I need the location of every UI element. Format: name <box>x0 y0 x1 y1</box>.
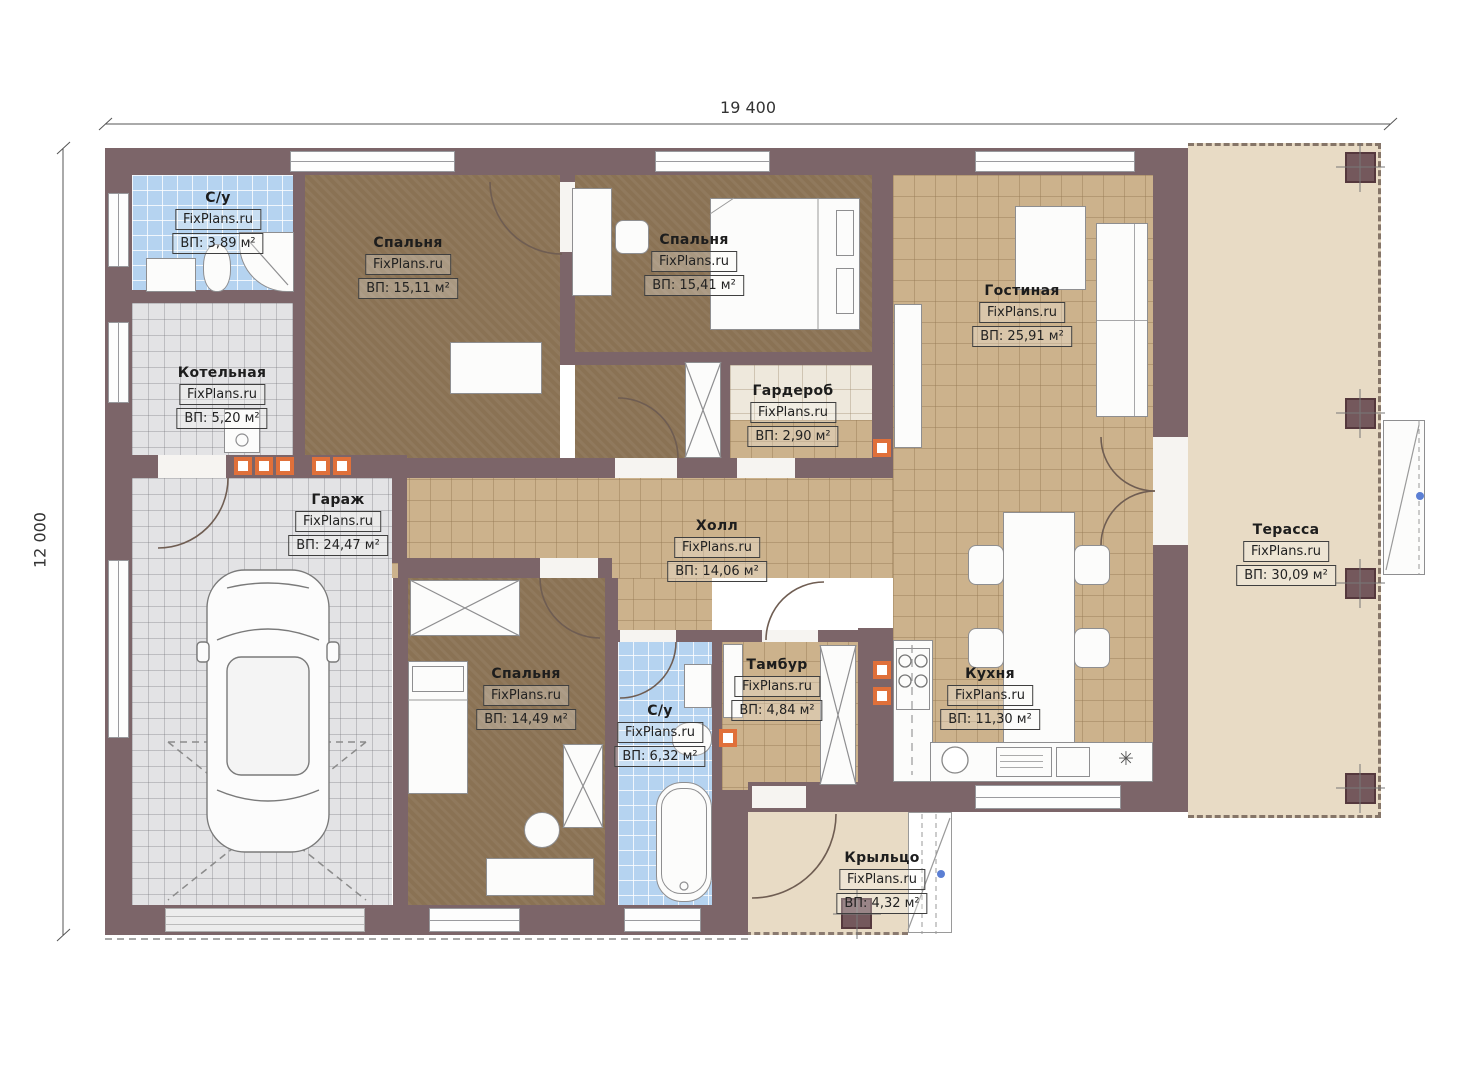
room-label-tambour: Тамбур FixPlans.ru ВП: 4,84 м² <box>731 657 822 721</box>
terrace-post-1 <box>1345 152 1376 183</box>
door-opening-su2 <box>620 630 676 642</box>
room-label-hall: Холл FixPlans.ru ВП: 14,06 м² <box>667 518 767 582</box>
door-opening-boiler-garage <box>158 455 226 478</box>
room-name: Гараж <box>311 492 364 508</box>
pillow-bedroom2-b <box>836 268 854 314</box>
area-box: ВП: 11,30 м² <box>940 709 1040 730</box>
brand-box: FixPlans.ru <box>175 209 261 230</box>
wall-su1-right <box>293 175 305 458</box>
room-name: Крыльцо <box>844 850 919 866</box>
window-top-2 <box>655 151 770 172</box>
brand-box: FixPlans.ru <box>295 511 381 532</box>
door-opening-tambour-porch <box>752 786 806 808</box>
room-name: Терасса <box>1253 522 1320 538</box>
room-label-bedroom2: Спальня FixPlans.ru ВП: 15,41 м² <box>644 232 744 296</box>
brand-box: FixPlans.ru <box>750 402 836 423</box>
terrace-post-3 <box>1345 568 1376 599</box>
room-name: С/у <box>205 190 230 206</box>
closet-bedroom2 <box>685 362 721 458</box>
window-kitchen <box>975 785 1121 809</box>
stove <box>896 648 930 710</box>
vent-6 <box>873 439 891 457</box>
area-box: ВП: 30,09 м² <box>1236 565 1336 586</box>
brand-box: FixPlans.ru <box>365 254 451 275</box>
brand-box: FixPlans.ru <box>617 722 703 743</box>
wall-garage-right <box>392 478 407 563</box>
area-box: ВП: 3,89 м² <box>172 233 263 254</box>
wall-bottom-right <box>748 782 1188 812</box>
wall-corner-block <box>712 790 748 935</box>
room-label-living: Гостиная FixPlans.ru ВП: 25,91 м² <box>972 283 1072 347</box>
bathtub-inner <box>661 788 707 894</box>
dresser-bedroom3 <box>486 858 594 896</box>
brand-box: FixPlans.ru <box>947 685 1033 706</box>
stool-bedroom3 <box>524 812 560 848</box>
dimension-height: 12 000 <box>31 512 50 568</box>
room-name: Гардероб <box>752 383 833 399</box>
door-opening-bedroom3 <box>540 558 598 578</box>
area-box: ВП: 4,32 м² <box>836 893 927 914</box>
sink-bathroom1 <box>146 258 196 292</box>
wall-hall-living <box>872 175 893 473</box>
vent-2 <box>255 457 273 475</box>
brand-box: FixPlans.ru <box>734 676 820 697</box>
vent-8 <box>873 687 891 705</box>
dining-chair-3 <box>1074 545 1110 585</box>
area-box: ВП: 14,06 м² <box>667 561 767 582</box>
room-label-su2: С/у FixPlans.ru ВП: 6,32 м² <box>614 703 705 767</box>
room-label-su1: С/у FixPlans.ru ВП: 3,89 м² <box>172 190 263 254</box>
dining-chair-1 <box>968 545 1004 585</box>
area-box: ВП: 24,47 м² <box>288 535 388 556</box>
area-box: ВП: 4,84 м² <box>731 700 822 721</box>
floor-terrace <box>1188 143 1381 818</box>
room-label-porch: Крыльцо FixPlans.ru ВП: 4,32 м² <box>836 850 927 914</box>
sofa-living <box>1096 223 1148 417</box>
terrace-post-4 <box>1345 773 1376 804</box>
area-box: ВП: 15,11 м² <box>358 278 458 299</box>
area-box: ВП: 5,20 м² <box>176 408 267 429</box>
area-box: ВП: 15,41 м² <box>644 275 744 296</box>
room-name: Тамбур <box>746 657 807 673</box>
wall-kitchen-left <box>858 628 893 782</box>
closet-bedroom3-top <box>410 580 520 636</box>
room-label-bedroom1: Спальня FixPlans.ru ВП: 15,11 м² <box>358 235 458 299</box>
vent-9 <box>719 729 737 747</box>
room-label-kitchen: Кухня FixPlans.ru ВП: 11,30 м² <box>940 666 1040 730</box>
room-label-terrace: Терасса FixPlans.ru ВП: 30,09 м² <box>1236 522 1336 586</box>
door-opening-tambour-hall <box>762 630 818 642</box>
room-name: Холл <box>696 518 738 534</box>
closet-bedroom3-low <box>563 744 603 828</box>
terrace-post-2 <box>1345 398 1376 429</box>
brand-box: FixPlans.ru <box>483 685 569 706</box>
tv-stand-living <box>894 304 922 448</box>
area-box: ВП: 25,91 м² <box>972 326 1072 347</box>
brand-box: FixPlans.ru <box>979 302 1065 323</box>
vent-7 <box>873 661 891 679</box>
dimension-width: 19 400 <box>720 98 776 117</box>
room-name: С/у <box>647 703 672 719</box>
brand-box: FixPlans.ru <box>1243 541 1329 562</box>
pillow-bedroom2-a <box>836 210 854 256</box>
room-label-wardrobe: Гардероб FixPlans.ru ВП: 2,90 м² <box>747 383 838 447</box>
terrace-ramp <box>1383 420 1425 575</box>
coffee-table-living <box>1015 206 1086 290</box>
vent-3 <box>276 457 294 475</box>
defrost-symbol: ✳ <box>1118 748 1134 770</box>
dining-chair-2 <box>968 628 1004 668</box>
room-name: Спальня <box>659 232 728 248</box>
desk-bedroom2 <box>572 188 612 296</box>
room-label-garage: Гараж FixPlans.ru ВП: 24,47 м² <box>288 492 388 556</box>
vent-5 <box>333 457 351 475</box>
room-label-bedroom3: Спальня FixPlans.ru ВП: 14,49 м² <box>476 666 576 730</box>
room-name: Спальня <box>491 666 560 682</box>
dishwasher <box>996 747 1052 777</box>
brand-box: FixPlans.ru <box>839 869 925 890</box>
door-opening-bedroom2 <box>615 458 677 478</box>
vent-4 <box>312 457 330 475</box>
area-box: ВП: 2,90 м² <box>747 426 838 447</box>
pillow-bedroom3 <box>412 666 464 692</box>
window-bottom-1 <box>429 908 520 932</box>
area-box: ВП: 6,32 м² <box>614 746 705 767</box>
room-name: Гостиная <box>984 283 1059 299</box>
door-opening-terrace <box>1153 437 1188 545</box>
window-top-1 <box>290 151 455 172</box>
closet-tambour <box>820 645 856 785</box>
washer-bathroom2 <box>684 664 712 708</box>
room-label-boiler: Котельная FixPlans.ru ВП: 5,20 м² <box>176 365 267 429</box>
garage-door <box>165 908 365 932</box>
window-top-3 <box>975 151 1135 172</box>
floor-bedroom-1 <box>305 175 560 458</box>
brand-box: FixPlans.ru <box>674 537 760 558</box>
floor-plan: ✳ <box>0 0 1474 1080</box>
window-left-2 <box>108 322 129 403</box>
brand-box: FixPlans.ru <box>651 251 737 272</box>
kitchen-cabinet <box>1056 747 1090 777</box>
bed-bedroom1 <box>450 342 542 394</box>
window-bottom-2 <box>624 908 701 932</box>
window-left-1 <box>108 193 129 267</box>
room-name: Кухня <box>965 666 1015 682</box>
vent-1 <box>234 457 252 475</box>
wall-wardrobe-left <box>720 352 730 458</box>
brand-box: FixPlans.ru <box>179 384 265 405</box>
window-left-3 <box>108 560 129 738</box>
room-name: Котельная <box>178 365 267 381</box>
dining-chair-4 <box>1074 628 1110 668</box>
area-box: ВП: 14,49 м² <box>476 709 576 730</box>
room-name: Спальня <box>373 235 442 251</box>
door-opening-wardrobe <box>737 458 795 478</box>
wall-bedroom3-left <box>393 578 408 905</box>
wall-hall-top <box>302 458 893 478</box>
